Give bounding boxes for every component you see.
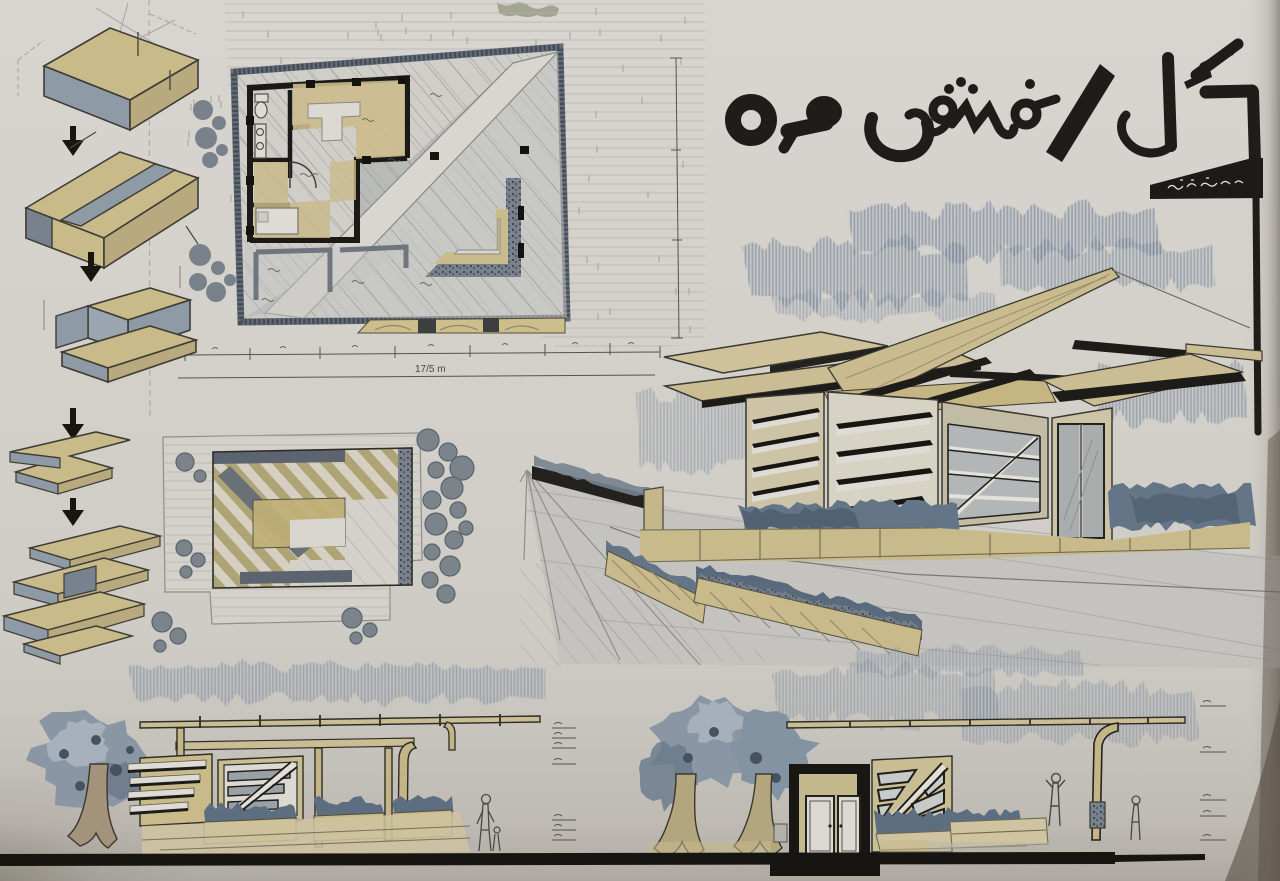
svg-text:17/5 m: 17/5 m (415, 364, 446, 375)
